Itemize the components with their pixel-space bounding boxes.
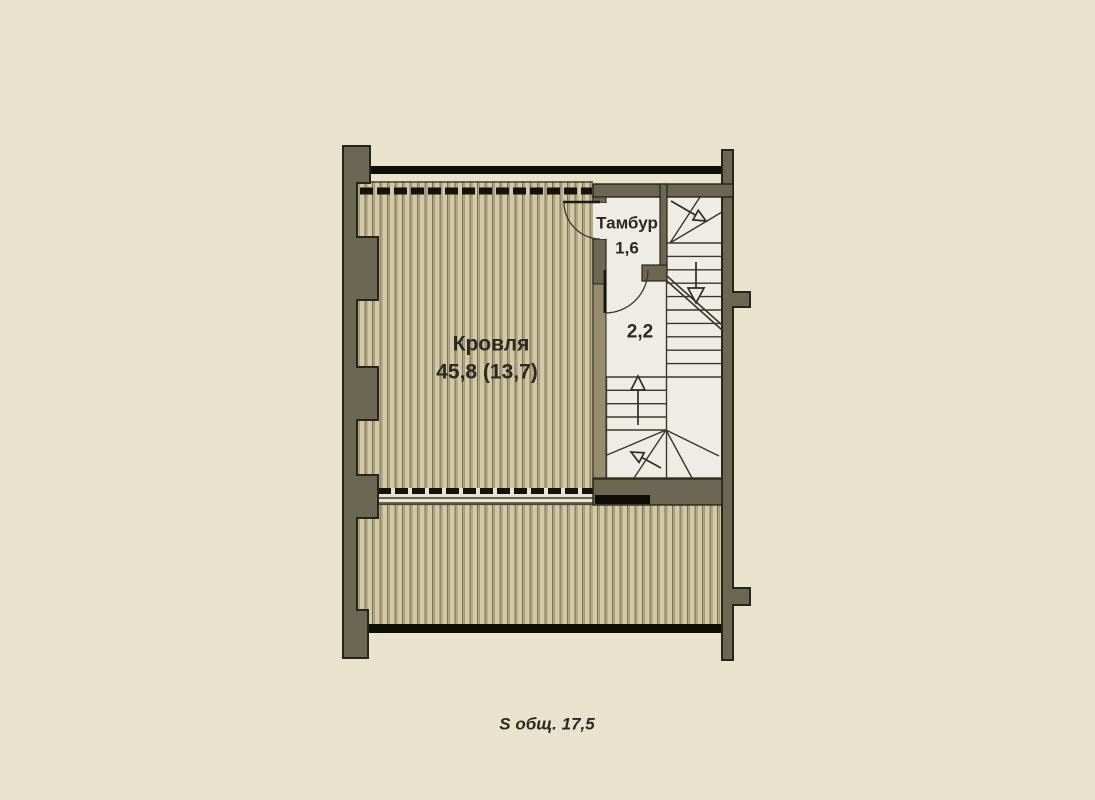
stair-floor [593, 197, 722, 479]
roof-room-label: Кровля [453, 334, 530, 355]
top-eaves-line [366, 166, 722, 174]
right-wall [722, 150, 750, 660]
bottom-eaves-line [368, 624, 722, 633]
tambour-area-value: 1,6 [615, 240, 639, 257]
roof-hatch-lower [357, 504, 722, 624]
total-area-caption: S общ. 17,5 [499, 716, 594, 733]
landing-area-value: 2,2 [627, 323, 653, 342]
floor-plan-drawing [0, 0, 1095, 800]
roof-area-value: 45,8 (13,7) [436, 362, 538, 383]
tambour-room-label: Тамбур [596, 215, 658, 232]
floor-plan-canvas: Кровля 45,8 (13,7) Тамбур 1,6 2,2 S общ.… [0, 0, 1095, 800]
